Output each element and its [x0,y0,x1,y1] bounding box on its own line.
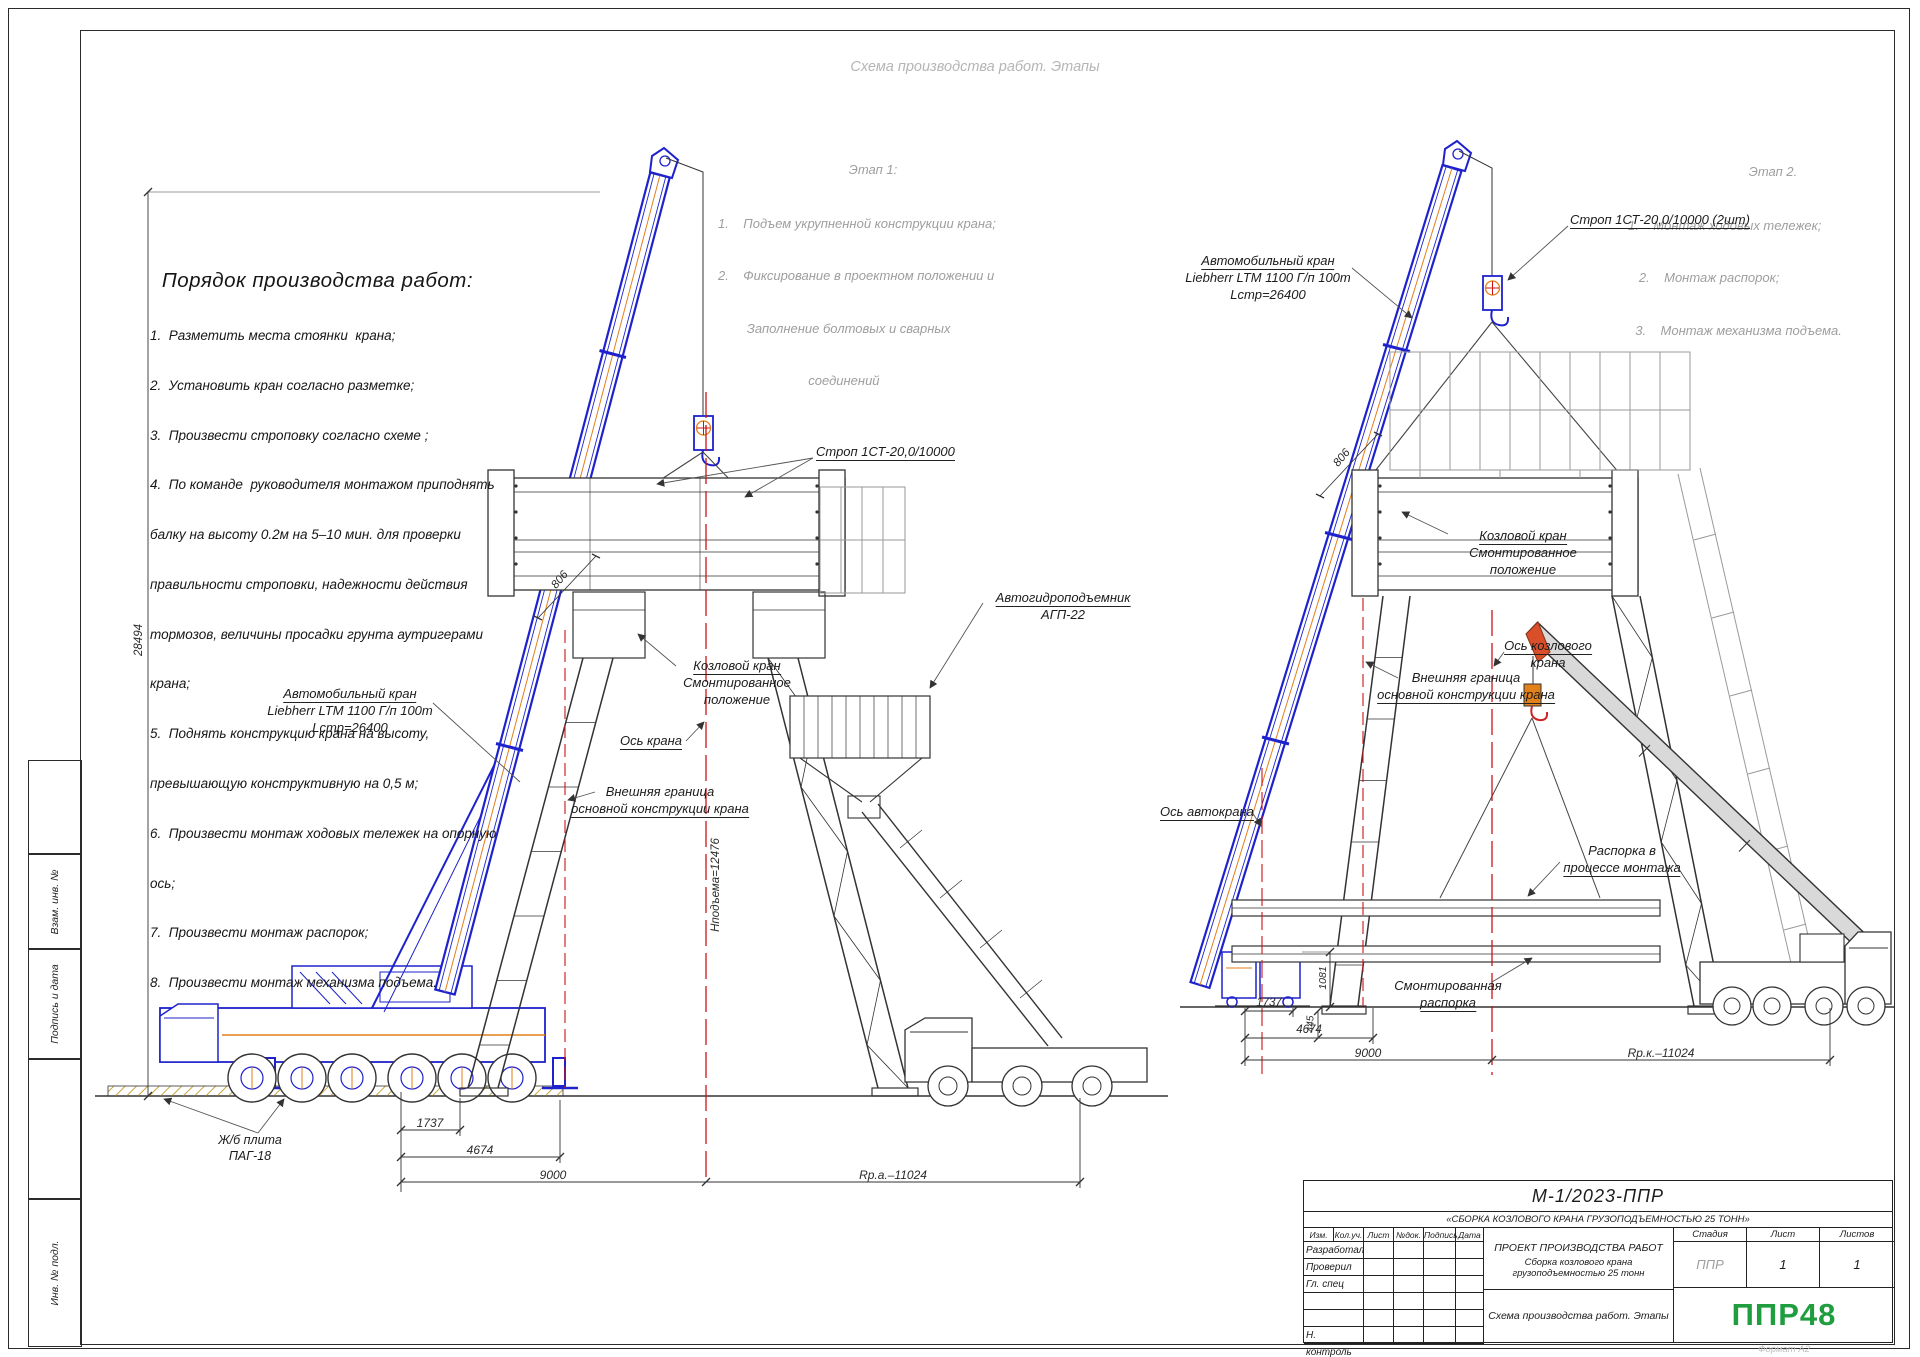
stamp-cell-vzam: Взам. инв. № [28,853,82,950]
project-name: ПРОЕКТ ПРОИЗВОДСТВА РАБОТ [1484,1242,1673,1254]
left-boundary-label: Внешняя граница основной конструкции кра… [571,784,749,818]
right-sling-label: Строп 1СТ-20,0/10000 (2шт) [1570,212,1750,229]
sheets-value: 1 [1820,1242,1894,1288]
order-line: 7. Произвести монтаж распорок; [150,925,485,942]
col-podpis: Подпись [1424,1228,1456,1242]
stage1-item: 1. Подъем укрупненной конструкции крана; [718,215,1028,233]
stamp-label-vzam: Взам. инв. № [49,869,61,934]
left-crane-label-line1: Автомобильный кран [283,686,416,703]
right-boundary-label: Внешняя граница основной конструкции кра… [1377,670,1555,704]
doc-number: М-1/2023-ППР [1304,1181,1892,1212]
row-glspec: Гл. спец [1304,1276,1484,1293]
title-block-center: ПРОЕКТ ПРОИЗВОДСТВА РАБОТ Сборка козлово… [1484,1228,1674,1342]
title-block-revision-table: Изм. Кол.уч. Лист №док. Подпись Дата Раз… [1304,1228,1484,1342]
strut-label: Распорка в процессе монтажа [1563,843,1680,877]
stage-value: ППР [1674,1242,1747,1288]
row-empty-2 [1304,1310,1484,1327]
dim-total-height: 28494 [133,624,145,656]
left-crane-label: Автомобильный кран Liebherr LTM 1100 Г/п… [267,686,433,737]
stage1-item: соединений [718,372,1028,390]
mounted-strut-label: Смонтированная распорка [1394,978,1501,1012]
dim-1737-left: 1737 [417,1116,444,1130]
order-line: превышающую конструктивную на 0,5 м; [150,776,485,793]
right-gantry-label: Козловой кран Смонтированное положение [1469,528,1577,579]
stage1-list: Этап 1: 1. Подъем укрупненной конструкци… [718,126,1028,425]
ppr48-logo: ППР48 [1674,1288,1894,1342]
col-koluch: Кол.уч. [1334,1228,1364,1242]
col-data: Дата [1456,1228,1484,1242]
dim-lift-height: Hподъема=12476 [710,838,722,932]
dim-9000-left: 9000 [540,1168,567,1182]
dim-radius-right: Rр.к.–11024 [1628,1046,1695,1060]
sheet-watermark-title: Схема производства работ. Этапы [850,58,1099,77]
stage2-list: Этап 2. 1. Монтаж ходовых тележек; 2. Мо… [1628,128,1918,374]
stamp-cell-podpis: Подпись и дата [28,948,82,1060]
row-proveril: Проверил [1304,1259,1484,1276]
col-list: Лист [1364,1228,1394,1242]
order-of-work: Порядок производства работ: 1. Разметить… [150,240,485,1025]
col-izm: Изм. [1304,1228,1334,1242]
left-crane-label-line2: Liebherr LTM 1100 Г/п 100т [267,703,433,720]
order-line: 6. Произвести монтаж ходовых тележек на … [150,826,485,843]
stamp-cell-inv: Инв. № подл. [28,1198,82,1347]
dim-4674-right: 4674 [1296,1024,1322,1036]
order-line: правильности строповки, надежности дейст… [150,577,485,594]
stamp-cell-empty-2 [28,1058,82,1200]
project-subtitle: Сборка козлового крана грузоподъемностью… [1484,1257,1673,1279]
dim-4674-left: 4674 [467,1143,494,1157]
stage1-title: Этап 1: [718,161,1028,179]
stage-label: Стадия [1674,1228,1747,1242]
order-line: балку на высоту 0.2м на 5–10 мин. для пр… [150,527,485,544]
stamp-cell-empty-1 [28,760,82,855]
right-crane-label: Автомобильный кран Liebherr LTM 1100 Г/п… [1185,253,1351,304]
doc-title: «СБОРКА КОЗЛОВОГО КРАНА ГРУЗОПОДЪЕМНОСТЬ… [1304,1212,1892,1228]
dim-radius-left: Rр.а.–11024 [859,1168,927,1182]
order-line: ось; [150,876,485,893]
order-line: 8. Произвести монтаж механизма подъема. [150,975,485,992]
dim-1737-right: 1737 [1256,997,1282,1009]
order-line: 1. Разметить места стоянки крана; [150,328,485,345]
sheet-label: Лист [1747,1228,1820,1242]
order-title: Порядок производства работ: [150,273,485,290]
right-gantry-axis-label: Ось козлового крана [1504,638,1592,672]
truck-axis-label: Ось автокрана [1160,804,1254,821]
left-sling-label: Строп 1СТ-20,0/10000 [816,444,955,461]
dim-1081: 1081 [1317,966,1329,989]
aerial-lift-label: Автогидроподъемник АГП-22 [996,590,1131,624]
row-nkontrol: Н. контроль [1304,1327,1484,1344]
row-razrabotal: Разработал [1304,1242,1484,1259]
row-empty-1 [1304,1293,1484,1310]
order-line: 3. Произвести строповку согласно схеме ; [150,428,485,445]
plate-label: Ж/б плита ПАГ-18 [218,1132,282,1165]
stage2-title: Этап 2. [1628,163,1918,181]
format-note: Формат А2 [1758,1344,1810,1355]
stamp-label-podpis: Подпись и дата [49,964,61,1043]
sheet-value: 1 [1747,1242,1820,1288]
order-line: 2. Установить кран согласно разметке; [150,378,485,395]
order-line: 4. По команде руководителя монтажом прип… [150,477,485,494]
dim-9000-right: 9000 [1355,1046,1382,1060]
order-line: тормозов, величины просадки грунта аутри… [150,627,485,644]
sheets-label: Листов [1820,1228,1894,1242]
stamp-label-inv: Инв. № подл. [49,1240,61,1305]
stage2-item: 2. Монтаж распорок; [1628,269,1918,287]
stage1-item: 2. Фиксирование в проектном положении и [718,267,1028,285]
drawing-sheet: Взам. инв. № Подпись и дата Инв. № подл.… [0,0,1920,1357]
title-block-right: Стадия Лист Листов ППР 1 1 ППР48 [1674,1228,1894,1342]
left-crane-label-line3: Lстр=26400 [267,720,433,737]
title-block: М-1/2023-ППР «СБОРКА КОЗЛОВОГО КРАНА ГРУ… [1303,1180,1893,1343]
left-gantry-label: Козловой кран Смонтированное положение [683,658,791,709]
sheet-name: Схема производства работ. Этапы [1484,1290,1673,1342]
stage1-item: Заполнение болтовых и сварных [718,320,1028,338]
stage2-item: 3. Монтаж механизма подъема. [1628,322,1918,340]
col-ndok: №док. [1394,1228,1424,1242]
left-axis-label: Ось крана [620,733,682,750]
